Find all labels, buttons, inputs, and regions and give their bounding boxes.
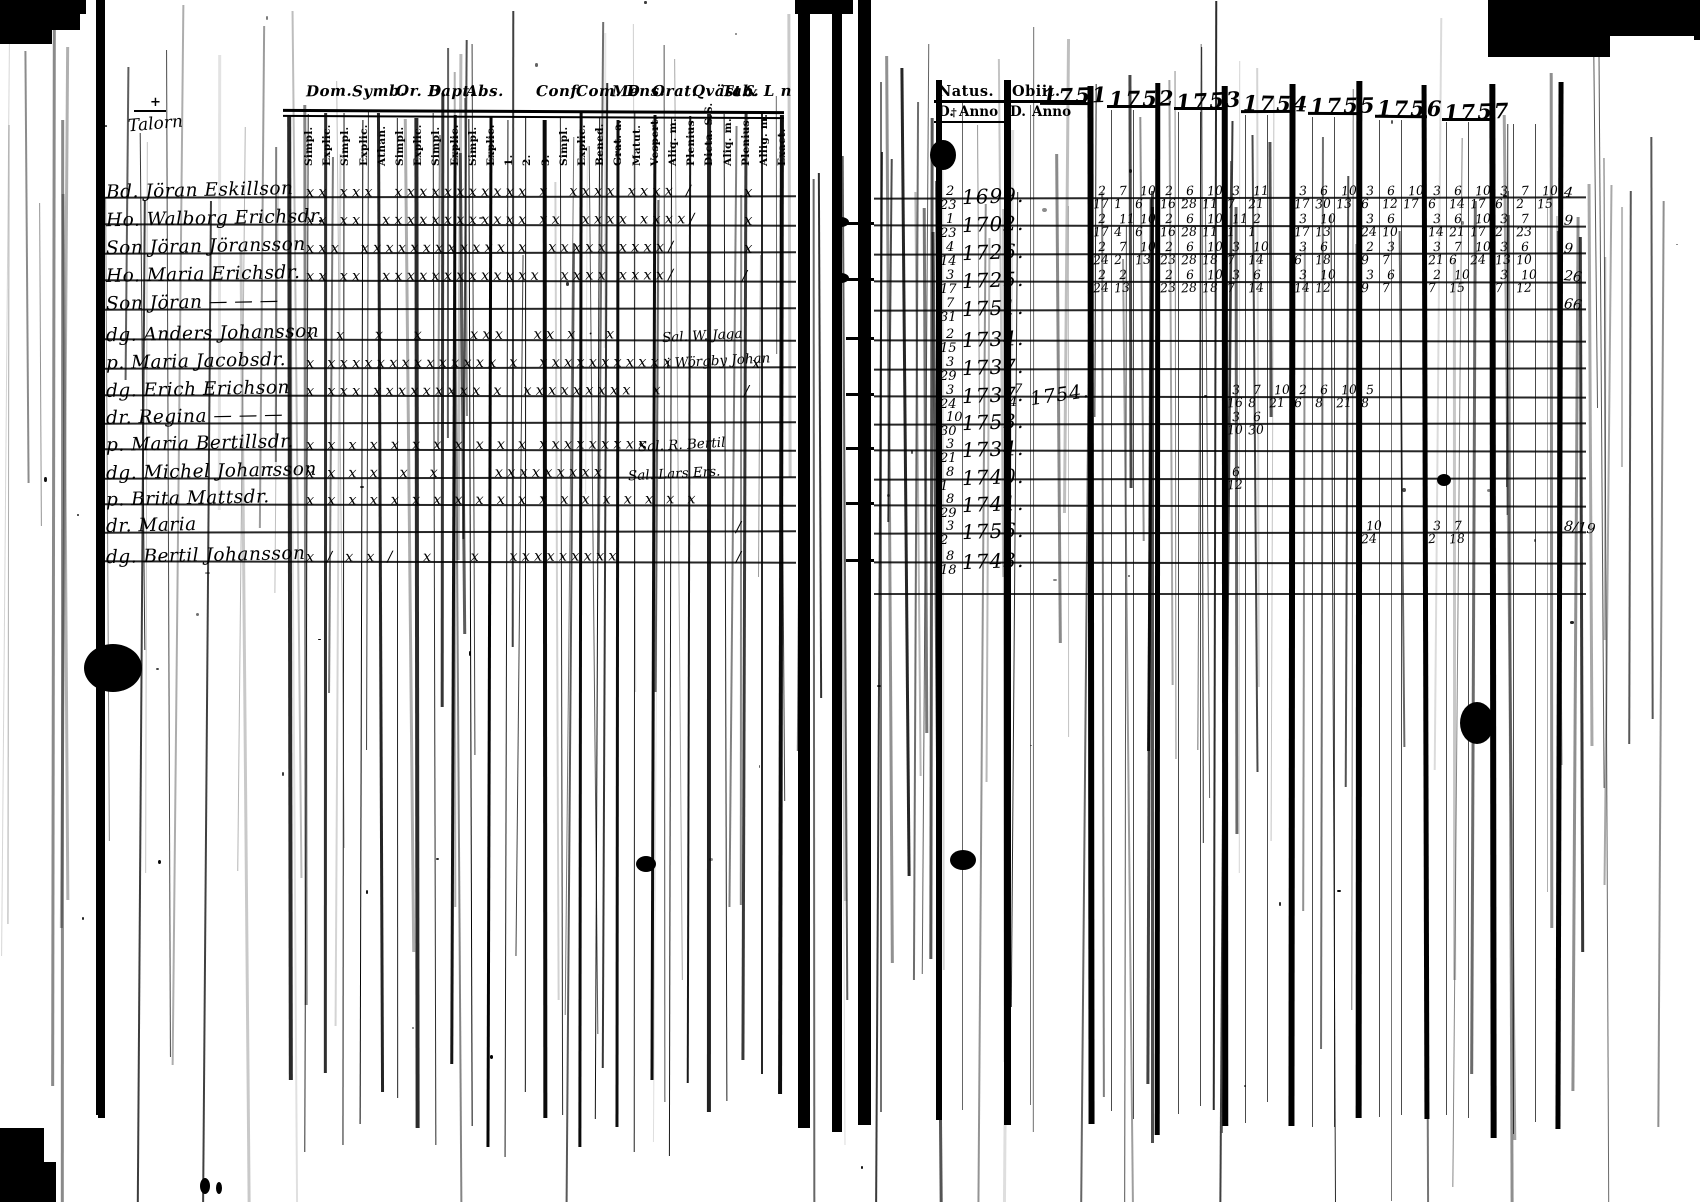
- year-underline: [1040, 102, 1092, 106]
- obiit-day-label: D.: [1010, 104, 1026, 120]
- natus-day-value: 2: [940, 533, 948, 548]
- year-underline: [1375, 115, 1427, 119]
- row-trail-value: 66: [1563, 296, 1582, 314]
- natus-anno-label: Anno: [959, 104, 998, 120]
- natus-anno-value: 1740.: [962, 464, 1025, 490]
- natus-day-value: 18: [940, 563, 957, 578]
- gutter-dash: [846, 502, 874, 505]
- natus-anno-value: 1737.: [962, 354, 1025, 380]
- scanned-register-spread: Talorn+Dom.Symb.Or. D.Bapt.Abs.Conf.Com.…: [0, 0, 1700, 1202]
- row-trail-value: 8/19: [1563, 518, 1596, 537]
- natus-underline: [934, 100, 1006, 103]
- row-trail-value: 4: [1563, 185, 1574, 202]
- year-underline: [1241, 110, 1293, 113]
- year-boundary-line: [1555, 82, 1563, 1129]
- natus-anno-value: 1753.: [962, 409, 1025, 435]
- year-header: 1753: [1175, 86, 1243, 114]
- natus-anno-value: 1751.: [962, 295, 1025, 321]
- natus-box-line: [1004, 80, 1011, 1125]
- extra-row-rule: [874, 593, 1586, 595]
- gutter-dash: [846, 447, 874, 450]
- gutter-dash: [846, 393, 874, 396]
- natus-anno-value: 1699.: [962, 183, 1025, 209]
- right-page: Natus.Obiit.D.†AnnoD.Anno175117521753175…: [0, 0, 1700, 1202]
- natus-day-value: 23: [940, 198, 957, 213]
- row-trail-value: 9: [1563, 241, 1574, 258]
- year-underline: [1174, 107, 1226, 110]
- natus-day-value: 31: [940, 310, 957, 325]
- natus-cross-mark: †: [951, 106, 957, 119]
- natus-day-value: 23: [940, 226, 957, 241]
- natus-header-rule2: [934, 121, 1006, 123]
- natus-day-value: 21: [940, 451, 957, 466]
- gutter-dash: [846, 222, 874, 225]
- natus-anno-value: 1756.: [962, 518, 1025, 544]
- gutter-dash: [846, 278, 874, 281]
- gutter-dash: [846, 337, 874, 340]
- natus-day-value: 29: [940, 369, 957, 384]
- year-underline: [1442, 118, 1494, 121]
- natus-day-value: 14: [940, 254, 957, 269]
- natus-anno-value: 1726.: [962, 239, 1025, 265]
- natus-header: Natus.: [938, 83, 994, 100]
- natus-day-value: 17: [940, 282, 957, 297]
- year-underline: [1107, 105, 1159, 108]
- natus-day-value: 15: [940, 341, 957, 356]
- natus-box-line: [880, 82, 882, 1112]
- gutter-dash: [846, 559, 874, 562]
